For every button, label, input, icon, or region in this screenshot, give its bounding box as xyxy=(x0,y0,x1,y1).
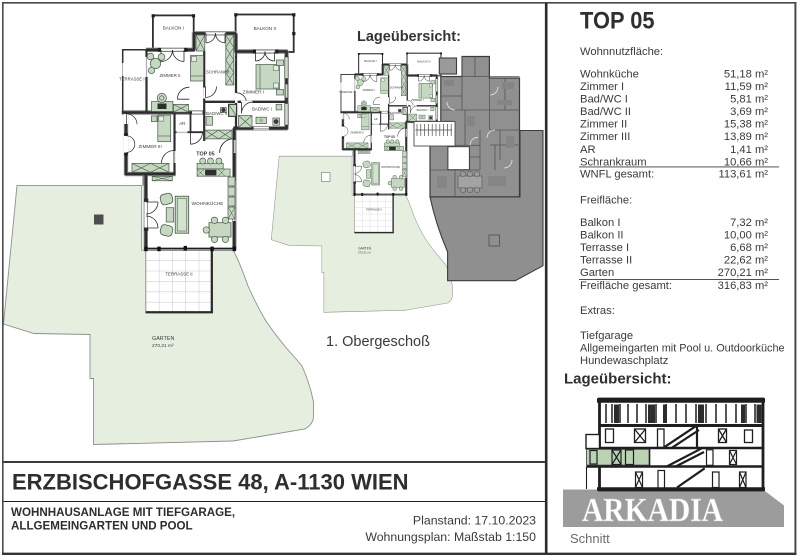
svg-text:Wohnnutzfläche:: Wohnnutzfläche: xyxy=(580,46,663,58)
svg-text:BAD/WC I: BAD/WC I xyxy=(252,107,272,112)
svg-text:Terrasse II: Terrasse II xyxy=(580,255,632,267)
svg-text:WOHNKÜCHE: WOHNKÜCHE xyxy=(192,200,224,207)
svg-text:Wohnküche: Wohnküche xyxy=(580,69,639,81)
svg-text:ZIMMER III: ZIMMER III xyxy=(139,144,162,149)
svg-text:Extras:: Extras: xyxy=(580,305,615,317)
svg-text:1. Obergeschoß: 1. Obergeschoß xyxy=(326,334,430,350)
svg-text:BALKON II: BALKON II xyxy=(254,26,276,31)
svg-text:Bad/WC II: Bad/WC II xyxy=(580,106,631,118)
svg-text:270,21 m²: 270,21 m² xyxy=(718,267,769,279)
svg-text:10,00 m²: 10,00 m² xyxy=(724,230,768,242)
svg-text:3,69 m²: 3,69 m² xyxy=(730,106,768,118)
svg-text:GARTEN: GARTEN xyxy=(152,336,174,342)
svg-text:TERRASSE I: TERRASSE I xyxy=(119,77,145,82)
svg-text:ERZBISCHOFGASSE 48, A-1130 WIE: ERZBISCHOFGASSE 48, A-1130 WIEN xyxy=(12,470,409,495)
svg-text:ARKADIA: ARKADIA xyxy=(582,492,723,529)
svg-text:Bad/WC I: Bad/WC I xyxy=(580,94,628,106)
svg-text:11,59 m²: 11,59 m² xyxy=(725,81,769,93)
svg-text:SCHRANKR.: SCHRANKR. xyxy=(206,70,231,75)
svg-text:TOP 05: TOP 05 xyxy=(196,152,214,158)
svg-text:Zimmer II: Zimmer II xyxy=(580,119,627,131)
svg-text:Tiefgarage: Tiefgarage xyxy=(580,330,633,342)
svg-text:Lageübersicht:: Lageübersicht: xyxy=(564,371,672,388)
svg-text:270,21 m²: 270,21 m² xyxy=(152,343,174,349)
svg-text:13,89 m²: 13,89 m² xyxy=(724,131,768,143)
svg-text:Zimmer III: Zimmer III xyxy=(580,131,630,143)
svg-text:Balkon II: Balkon II xyxy=(580,230,624,242)
svg-text:Terrasse I: Terrasse I xyxy=(580,242,629,254)
svg-text:113,61 m²: 113,61 m² xyxy=(718,168,768,180)
svg-text:ALLGEMEINGARTEN UND POOL: ALLGEMEINGARTEN UND POOL xyxy=(11,520,193,533)
svg-text:WNFL gesamt:: WNFL gesamt: xyxy=(580,168,654,180)
svg-text:51,18 m²: 51,18 m² xyxy=(724,69,768,81)
svg-text:TOP 05: TOP 05 xyxy=(580,8,655,35)
svg-text:AR: AR xyxy=(580,144,596,156)
svg-text:ZIMMER II: ZIMMER II xyxy=(160,73,181,78)
svg-text:Balkon I: Balkon I xyxy=(580,217,620,229)
svg-text:1,41 m²: 1,41 m² xyxy=(730,144,768,156)
svg-text:Freifläche:: Freifläche: xyxy=(580,195,632,207)
svg-text:15,38 m²: 15,38 m² xyxy=(724,119,768,131)
svg-text:Zimmer I: Zimmer I xyxy=(580,81,624,93)
svg-text:BAD/WC II: BAD/WC II xyxy=(206,111,227,116)
svg-text:Allgemeingarten mit Pool u. Ou: Allgemeingarten mit Pool u. Outdoorküche xyxy=(580,343,785,355)
svg-text:Lageübersicht:: Lageübersicht: xyxy=(357,29,461,45)
svg-text:Hundewaschplatz: Hundewaschplatz xyxy=(580,355,669,367)
svg-text:ZIMMER I: ZIMMER I xyxy=(243,90,265,96)
svg-text:Schnitt: Schnitt xyxy=(570,531,610,546)
svg-text:BALKON I: BALKON I xyxy=(163,26,184,31)
svg-text:6,68 m²: 6,68 m² xyxy=(730,242,768,254)
svg-text:Freifläche gesamt:: Freifläche gesamt: xyxy=(580,280,672,292)
svg-text:22,62 m²: 22,62 m² xyxy=(724,255,768,267)
svg-text:WOHNHAUSANLAGE MIT TIEFGARAGE,: WOHNHAUSANLAGE MIT TIEFGARAGE, xyxy=(11,506,235,519)
svg-text:5,81 m²: 5,81 m² xyxy=(730,94,768,106)
svg-text:7,32 m²: 7,32 m² xyxy=(730,217,768,229)
svg-text:AR: AR xyxy=(179,121,185,126)
svg-text:TERRASSE II: TERRASSE II xyxy=(165,272,192,277)
svg-text:Planstand: 17.10.2023: Planstand: 17.10.2023 xyxy=(413,514,536,528)
svg-text:Wohnungsplan: Maßstab 1:150: Wohnungsplan: Maßstab 1:150 xyxy=(365,530,536,544)
svg-text:Garten: Garten xyxy=(580,267,614,279)
svg-text:316,83 m²: 316,83 m² xyxy=(718,280,769,292)
